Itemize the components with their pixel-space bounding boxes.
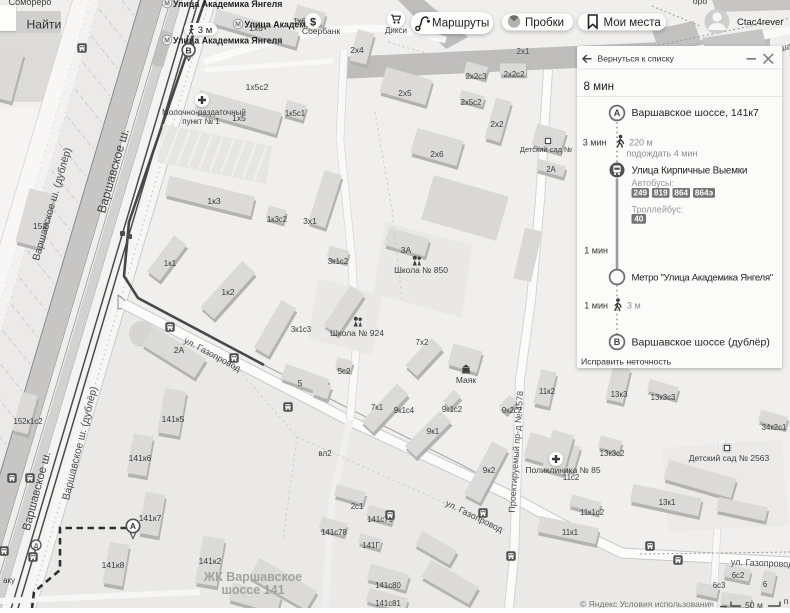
svg-text:Дикси: Дикси: [385, 26, 407, 35]
svg-text:3к1с2: 3к1с2: [328, 257, 348, 266]
svg-text:864: 864: [674, 189, 688, 198]
svg-text:7к1: 7к1: [371, 403, 383, 412]
svg-text:6: 6: [763, 580, 767, 589]
svg-text:2х5с2: 2х5с2: [461, 98, 482, 107]
svg-text:141к7: 141к7: [139, 513, 162, 523]
svg-text:Молочно-раздаточный: Молочно-раздаточный: [162, 108, 246, 117]
svg-text:141Г: 141Г: [362, 541, 380, 550]
svg-text:13к1: 13к1: [659, 498, 676, 507]
svg-text:В: В: [186, 46, 192, 56]
svg-text:подождать 4 мин: подождать 4 мин: [627, 149, 698, 159]
svg-text:141к6: 141к6: [129, 453, 152, 463]
svg-text:Исправить неточность: Исправить неточность: [581, 357, 672, 367]
svg-text:Найти: Найти: [27, 18, 62, 32]
svg-text:1к2: 1к2: [221, 287, 234, 297]
svg-text:М: М: [164, 1, 170, 8]
svg-text:Школа № 850: Школа № 850: [394, 265, 448, 275]
svg-text:864э: 864э: [695, 189, 714, 198]
svg-text:152к1с2: 152к1с2: [14, 417, 43, 426]
svg-text:В: В: [614, 337, 621, 347]
svg-text:Варшавское шоссе (дублёр): Варшавское шоссе (дублёр): [632, 337, 770, 349]
svg-text:11к2: 11к2: [539, 387, 556, 396]
svg-text:141к5: 141к5: [162, 414, 185, 424]
svg-text:40: 40: [634, 215, 644, 224]
svg-text:220 м: 220 м: [629, 138, 653, 148]
svg-text:2х5: 2х5: [398, 88, 412, 98]
svg-text:Д: Д: [34, 543, 39, 550]
svg-text:Вернуться к списку: Вернуться к списку: [598, 53, 675, 63]
svg-text:6с3: 6с3: [713, 581, 726, 590]
svg-text:5с2: 5с2: [338, 367, 351, 376]
svg-text:М: М: [164, 38, 170, 45]
svg-text:Метро "Улица Академика Янгеля": Метро "Улица Академика Янгеля": [632, 273, 773, 284]
svg-text:Пробки: Пробки: [525, 17, 564, 29]
svg-text:3 м: 3 м: [627, 301, 641, 311]
svg-text:2А: 2А: [174, 345, 185, 355]
svg-text:ЖК Варшавское: ЖК Варшавское: [203, 570, 302, 584]
svg-text:2х2с3: 2х2с3: [466, 72, 487, 81]
svg-text:13к3: 13к3: [611, 390, 628, 399]
svg-text:© Яндекс Условия использования: © Яндекс Условия использования: [580, 599, 714, 608]
svg-text:аку: аку: [3, 576, 15, 585]
svg-text:3х1: 3х1: [303, 216, 317, 226]
svg-text:3 мин: 3 мин: [583, 138, 607, 148]
svg-text:3 м: 3 м: [198, 25, 212, 36]
svg-text:Ctac4rever: Ctac4rever: [737, 17, 783, 28]
svg-text:шоссе 141: шоссе 141: [221, 583, 284, 597]
svg-text:1 мин: 1 мин: [584, 301, 608, 311]
svg-text:9к1с4: 9к1с4: [394, 406, 415, 415]
svg-text:Детский сад №: Детский сад №: [520, 145, 572, 154]
svg-text:2х1: 2х1: [517, 47, 530, 56]
svg-text:2А: 2А: [546, 165, 556, 174]
svg-text:Автобусы:: Автобусы:: [632, 178, 674, 188]
svg-text:1к3с2: 1к3с2: [267, 215, 287, 224]
svg-text:Улица Академика Янгеля: Улица Академика Янгеля: [173, 0, 282, 9]
svg-text:141к8: 141к8: [102, 560, 125, 570]
svg-text:Детский сад № 2563: Детский сад № 2563: [689, 453, 770, 463]
svg-text:50 м: 50 м: [745, 600, 763, 608]
svg-text:п: п: [784, 596, 789, 606]
svg-text:3к1с3: 3к1с3: [291, 325, 311, 334]
svg-text:1к3: 1к3: [207, 196, 220, 206]
svg-text:11к1: 11к1: [562, 528, 579, 537]
svg-text:1 мин: 1 мин: [584, 246, 608, 256]
svg-text:8 мин: 8 мин: [584, 80, 615, 93]
svg-text:11с2: 11с2: [563, 473, 579, 482]
svg-text:Мои места: Мои места: [604, 17, 662, 29]
svg-text:34к2с1: 34к2с1: [762, 423, 787, 432]
svg-text:141с81: 141с81: [375, 599, 401, 608]
svg-text:13к3с3: 13к3с3: [651, 393, 676, 402]
svg-text:A: A: [614, 108, 621, 118]
svg-text:249: 249: [633, 189, 647, 198]
svg-text:1х5с2: 1х5с2: [246, 82, 269, 92]
svg-text:2х2с2: 2х2с2: [504, 70, 525, 79]
svg-text:2х2: 2х2: [490, 119, 504, 129]
svg-text:Маршруты: Маршруты: [432, 18, 489, 30]
svg-text:Троллейбус:: Троллейбус:: [632, 205, 684, 215]
svg-text:Улица Кирпичные Выемки: Улица Кирпичные Выемки: [632, 166, 748, 177]
svg-text:13к3с2: 13к3с2: [600, 449, 625, 458]
svg-text:Варшавское шоссе, 141к7: Варшавское шоссе, 141к7: [632, 107, 760, 119]
svg-text:1к5с1: 1к5с1: [285, 109, 305, 118]
svg-text:1к1: 1к1: [164, 259, 177, 268]
svg-text:9к1с2: 9к1с2: [442, 405, 462, 414]
svg-text:141к2: 141к2: [199, 556, 222, 566]
svg-text:Маяк: Маяк: [456, 375, 477, 385]
svg-text:6с2: 6с2: [732, 571, 745, 580]
svg-text:А: А: [130, 521, 136, 531]
svg-text:5: 5: [298, 378, 303, 388]
svg-text:3А: 3А: [401, 245, 412, 255]
svg-text:819: 819: [654, 189, 668, 198]
svg-text:$: $: [310, 17, 316, 29]
svg-text:11к1с2: 11к1с2: [580, 508, 604, 517]
svg-text:2х4: 2х4: [350, 45, 364, 55]
svg-text:вл2: вл2: [318, 449, 332, 458]
svg-text:пункт № 1: пункт № 1: [182, 117, 220, 126]
svg-text:9к2: 9к2: [483, 466, 496, 475]
svg-text:М: М: [235, 22, 241, 29]
svg-text:2с1: 2с1: [351, 502, 364, 511]
svg-text:Школа № 924: Школа № 924: [330, 328, 384, 338]
svg-text:оро: оро: [693, 0, 707, 6]
svg-text:141с80: 141с80: [375, 581, 401, 590]
svg-text:141с78: 141с78: [321, 528, 347, 537]
svg-text:2х6: 2х6: [430, 149, 444, 159]
svg-text:9к1: 9к1: [427, 427, 440, 436]
svg-text:7х2: 7х2: [416, 338, 429, 347]
